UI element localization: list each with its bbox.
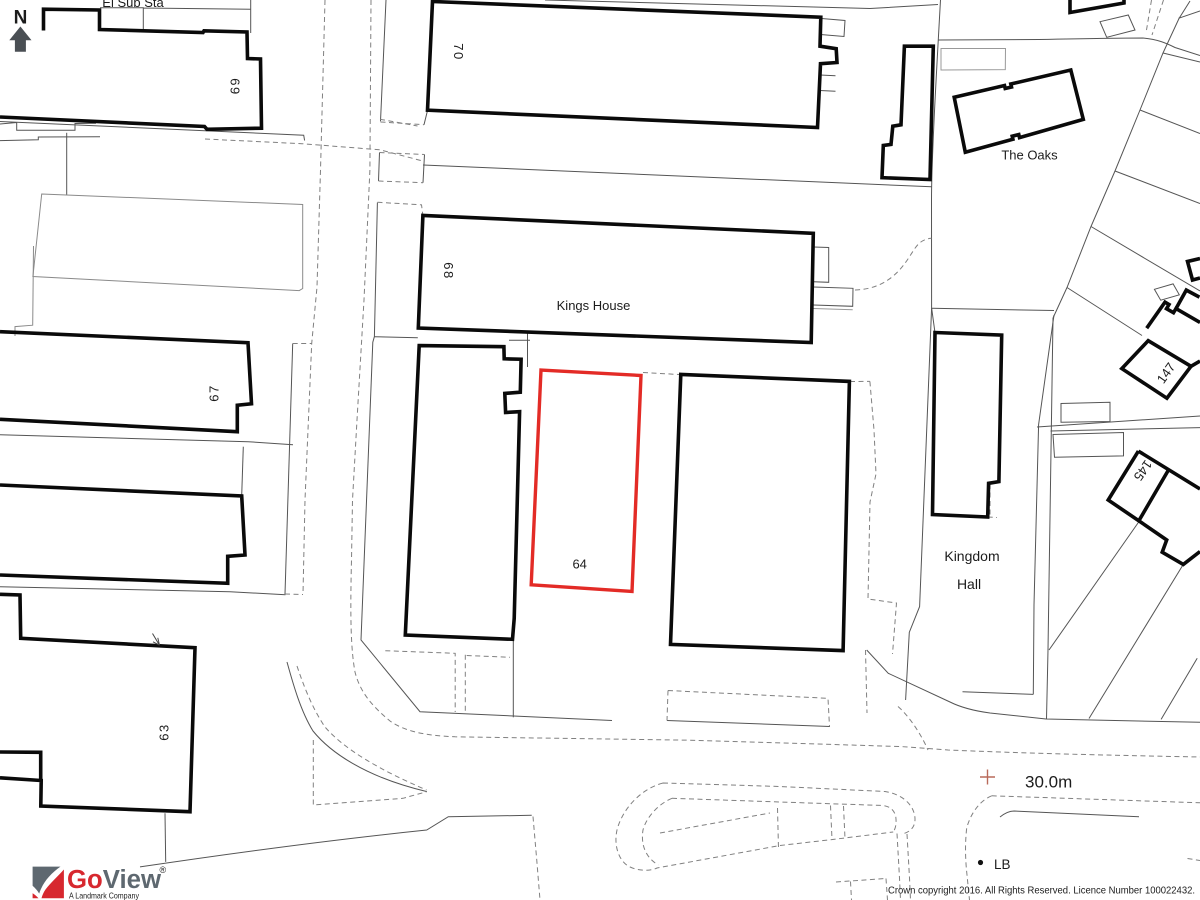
- svg-text:A Landmark Company: A Landmark Company: [69, 892, 140, 900]
- svg-text:68: 68: [441, 262, 456, 279]
- svg-text:67: 67: [207, 384, 222, 401]
- svg-text:Hall: Hall: [957, 576, 981, 592]
- svg-text:GoView: GoView: [67, 866, 161, 894]
- svg-text:The Oaks: The Oaks: [1001, 148, 1058, 163]
- svg-text:El Sub Sta: El Sub Sta: [102, 0, 164, 10]
- svg-text:64: 64: [572, 557, 586, 572]
- svg-text:LB: LB: [994, 857, 1011, 872]
- svg-text:69: 69: [228, 78, 243, 95]
- svg-text:63: 63: [157, 723, 172, 740]
- svg-text:70: 70: [451, 43, 466, 60]
- svg-text:®: ®: [160, 865, 167, 875]
- svg-text:Kings House: Kings House: [557, 298, 631, 313]
- svg-text:Kingdom: Kingdom: [944, 548, 999, 564]
- svg-text:30.0m: 30.0m: [1025, 773, 1072, 792]
- svg-text:N: N: [14, 8, 28, 29]
- svg-text:Crown copyright 2016. All Righ: Crown copyright 2016. All Rights Reserve…: [888, 886, 1195, 897]
